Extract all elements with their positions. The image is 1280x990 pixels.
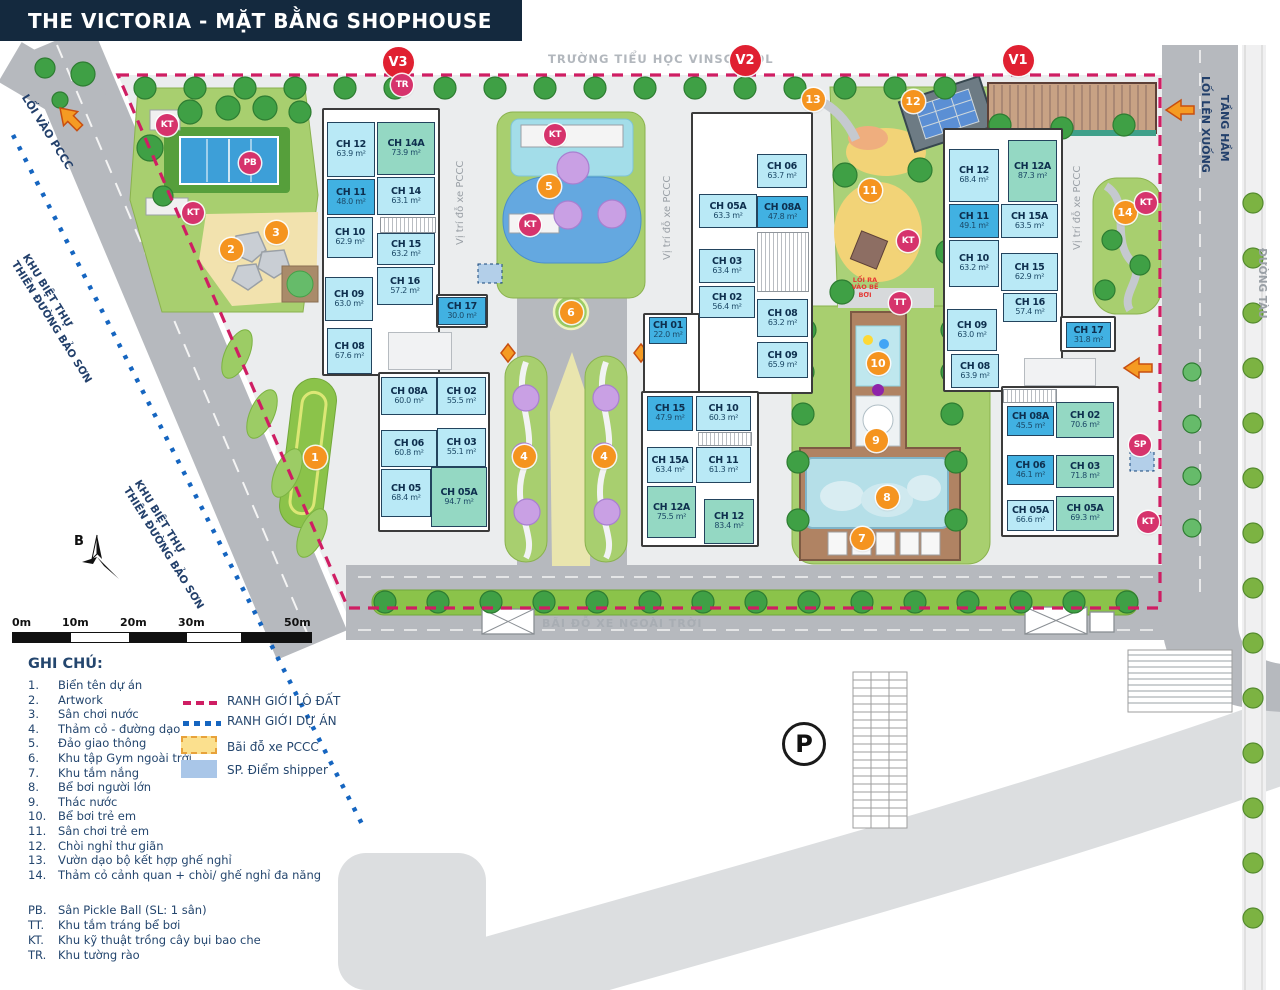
tree-icon [134,77,156,99]
tree-icon [234,77,256,99]
unit-v1-ch05a: CH 05A69.3 m² [1056,496,1114,531]
unit-v1-ch15: CH 1562.9 m² [1001,253,1058,291]
unit-v1-ch12: CH 1268.4 m² [949,149,999,202]
tree-icon [427,591,449,613]
parking-symbol: P [782,722,826,766]
legend-letter-item-1: PB.Sân Pickle Ball (SL: 1 sân) [28,903,498,918]
map-marker-3: 3 [265,221,288,244]
legend-letter-items: PB.Sân Pickle Ball (SL: 1 sân)TT.Khu tắm… [28,903,498,963]
unit-v3-ch08a: CH 08A60.0 m² [381,377,437,415]
parking-structure [853,672,907,828]
basement-ramp-label-1: LỐI LÊN XUỐNG [1199,76,1212,173]
unit-v2-ch01: CH 0122.0 m² [649,317,687,344]
tree-icon [434,77,456,99]
shipper-label: SP. Điểm shipper [227,763,328,777]
unit-v3-ch11: CH 1148.0 m² [327,179,375,215]
shipper-sample [181,760,217,778]
legend-item-8: 8.Bể bơi người lớn [28,780,498,795]
tree-icon [52,92,68,108]
tree-icon [1183,415,1201,433]
legend-item-9: 9.Thác nước [28,795,498,810]
lot-boundary-sample [183,701,221,705]
legend-item-14: 14.Thảm cỏ cảnh quan + chòi/ ghế nghỉ đa… [28,868,498,883]
page-title: THE VICTORIA - MẶT BẰNG SHOPHOUSE [0,9,492,33]
tree-icon [734,77,756,99]
map-marker-tr: TR [391,74,413,96]
map-marker-kt: KT [1137,511,1159,533]
tree-icon [1243,468,1263,488]
fire-parking-label-v2: Vị trí đỗ xe PCCC [662,176,673,260]
tree-icon [1243,578,1263,598]
map-marker-kt: KT [182,202,204,224]
stairs [757,232,809,292]
unit-v3-ch14a: CH 14A73.9 m² [377,122,435,175]
railway-label: ĐƯỜNG TÀU [1256,248,1268,318]
pccc-parking-sample [181,736,217,754]
tree-icon [745,591,767,613]
map-marker-pb: PB [239,152,261,174]
tree-icon [634,77,656,99]
unit-v3-ch12: CH 1263.9 m² [327,122,375,177]
lobby [1024,358,1096,386]
unit-v1-ch17: CH 1731.8 m² [1066,322,1111,348]
tree-icon [1113,114,1135,136]
tree-icon [1183,363,1201,381]
tree-icon [513,385,539,411]
map-marker-2: 2 [220,238,243,261]
stairs [1003,389,1057,403]
scale-10: 10m [62,616,89,629]
tree-icon [484,77,506,99]
tree-icon [374,591,396,613]
tree-icon [334,77,356,99]
tree-icon [184,77,206,99]
tree-icon [1243,688,1263,708]
tree-icon [253,96,277,120]
tree-icon [534,77,556,99]
tree-icon [480,591,502,613]
tree-icon [554,201,582,229]
header-bar: THE VICTORIA - MẶT BẰNG SHOPHOUSE [0,0,522,41]
unit-v3-ch05a: CH 05A94.7 m² [431,467,487,527]
tree-icon [945,451,967,473]
unit-v1-ch11: CH 1149.1 m² [949,204,999,238]
tree-icon [851,591,873,613]
legend-item-13: 13.Vườn dạo bộ kết hợp ghế nghỉ [28,853,498,868]
tree-icon [787,451,809,473]
unit-v1-ch16: CH 1657.4 m² [1003,293,1057,322]
stairs [380,217,436,233]
tree-icon [593,385,619,411]
site-plan-page: THE VICTORIA - MẶT BẰNG SHOPHOUSE TRƯỜNG… [0,0,1280,990]
tree-icon [904,591,926,613]
scale-50: 50m [284,616,311,629]
unit-v3-ch16: CH 1657.2 m² [377,267,433,305]
map-marker-4: 4 [593,445,616,468]
compass-icon [82,535,119,579]
unit-v2-ch05a: CH 05A63.3 m² [699,194,757,228]
map-marker-8: 8 [876,486,899,509]
unit-v3-ch10: CH 1062.9 m² [327,217,373,258]
legend-letter-item-3: KT.Khu kỹ thuật trồng cây bụi bao che [28,933,498,948]
map-marker-13: 13 [802,88,825,111]
tree-icon [834,77,856,99]
map-marker-12: 12 [902,90,925,113]
legend-letter-item-4: TR.Khu tường rào [28,948,498,963]
block-marker-v3: V3 [383,47,414,78]
unit-v1-ch12a: CH 12A87.3 m² [1008,140,1057,202]
unit-v1-ch08a: CH 08A45.5 m² [1007,406,1054,436]
unit-v1-ch09: CH 0963.0 m² [947,309,997,351]
tree-icon [1010,591,1032,613]
unit-v3-ch15: CH 1563.2 m² [377,233,435,265]
tree-icon [934,77,956,99]
tree-icon [586,591,608,613]
basement-ramp-label-2: TẦNG HẦM [1218,95,1231,162]
unit-v1-ch03: CH 0371.8 m² [1056,455,1114,488]
unit-v1-ch05a: CH 05A66.6 m² [1007,500,1054,531]
unit-v2-ch15a: CH 15A63.4 m² [647,447,693,483]
tree-icon [598,200,626,228]
tree-icon [137,135,163,161]
map-marker-9: 9 [865,429,888,452]
unit-v2-ch02: CH 0256.4 m² [699,286,755,318]
tree-icon [692,591,714,613]
fire-parking-label-v1: Vị trí đỗ xe PCCC [1072,166,1083,250]
tree-icon [514,499,540,525]
tree-icon [1116,591,1138,613]
unit-v2-ch11: CH 1161.3 m² [696,447,751,483]
tree-icon [178,100,202,124]
legend-item-1: 1.Biển tên dự án [28,678,498,693]
unit-v1-ch15a: CH 15A63.5 m² [1001,204,1058,238]
legend-item-11: 11.Sân chơi trẻ em [28,824,498,839]
map-marker-kt: KT [544,124,566,146]
tree-icon [1063,591,1085,613]
tree-icon [1243,798,1263,818]
tree-icon [941,403,963,425]
tree-icon [833,163,857,187]
unit-v2-ch09: CH 0965.9 m² [757,342,808,378]
tree-icon [1102,230,1122,250]
tree-icon [284,77,306,99]
bottom-curved-road [420,738,1280,990]
tree-icon [945,509,967,531]
unit-v1-ch08: CH 0863.9 m² [951,354,999,388]
unit-v1-ch02: CH 0270.6 m² [1056,402,1114,438]
sun-loungers [828,532,940,555]
tree-icon [1183,519,1201,537]
unit-v2-ch15: CH 1547.9 m² [647,396,693,431]
scale-30: 30m [178,616,205,629]
tree-icon [1130,255,1150,275]
tree-icon [1095,280,1115,300]
pool-entry-label: LỐI RA VÀO BỂ BƠI [845,277,885,299]
lot-boundary-label: RANH GIỚI LÔ ĐẤT [227,694,340,708]
unit-v3-ch09: CH 0963.0 m² [325,277,373,321]
tree-icon [71,62,95,86]
pccc-parking-label: Bãi đỗ xe PCCC [227,740,319,754]
map-marker-10: 10 [867,352,890,375]
tree-icon [908,158,932,182]
tree-icon [1243,908,1263,928]
scale-0: 0m [12,616,31,629]
tree-icon [1243,523,1263,543]
map-marker-7: 7 [851,527,874,550]
unit-v3-ch17: CH 1730.0 m² [438,297,486,325]
unit-v2-ch03: CH 0363.4 m² [699,249,755,283]
map-marker-sp: SP [1129,434,1151,456]
unit-v2-ch08a: CH 08A47.8 m² [757,196,808,228]
unit-v1-ch10: CH 1063.2 m² [949,240,999,287]
project-boundary-sample [183,721,221,726]
lobby [388,332,452,370]
unit-v3-ch02: CH 0255.5 m² [437,377,486,415]
map-marker-4: 4 [513,445,536,468]
compass-letter: B [74,534,84,549]
legend-item-10: 10.Bể bơi trẻ em [28,809,498,824]
map-marker-kt: KT [519,214,541,236]
tree-icon [957,591,979,613]
tree-icon [1243,633,1263,653]
tree-icon [594,499,620,525]
legend-heading: GHI CHÚ: [28,656,498,672]
tree-icon [798,591,820,613]
map-marker-11: 11 [859,179,882,202]
map-marker-14: 14 [1114,201,1137,224]
tree-icon [216,96,240,120]
map-marker-5: 5 [538,175,561,198]
tree-icon [1243,413,1263,433]
unit-v3-ch06: CH 0660.8 m² [381,430,437,467]
tree-icon [557,152,589,184]
outdoor-parking-label: BÃI ĐỖ XE NGOÀI TRỜI [542,617,702,630]
scale-20: 20m [120,616,147,629]
map-marker-1: 1 [304,446,327,469]
tree-icon [584,77,606,99]
unit-v2-ch08: CH 0863.2 m² [757,299,808,337]
scale-bar: 0m 10m 20m 30m 50m [12,616,312,648]
tree-icon [792,403,814,425]
tree-icon [1243,743,1263,763]
map-marker-tt: TT [889,292,911,314]
unit-v2-ch10: CH 1060.3 m² [696,396,751,431]
unit-v3-ch08: CH 0867.6 m² [327,328,372,374]
stairs [698,432,752,446]
unit-v3-ch05: CH 0568.4 m² [381,469,431,517]
map-marker-kt: KT [156,114,178,136]
legend-letter-item-2: TT.Khu tắm tráng bể bơi [28,918,498,933]
tree-icon [1243,853,1263,873]
tree-icon [533,591,555,613]
legend-item-12: 12.Chòi nghỉ thư giãn [28,839,498,854]
unit-v1-ch06: CH 0646.1 m² [1007,455,1054,485]
tree-icon [787,509,809,531]
block-marker-v2: V2 [730,45,761,76]
fire-parking-label-v3: Vị trí đỗ xe PCCC [455,161,466,245]
unit-v3-ch03: CH 0355.1 m² [437,428,486,467]
map-marker-6: 6 [560,301,583,324]
unit-v2-ch12a: CH 12A75.5 m² [647,486,696,538]
map-marker-kt: KT [1135,192,1157,214]
tree-icon [684,77,706,99]
tree-icon [639,591,661,613]
tree-icon [1183,467,1201,485]
unit-v2-ch06: CH 0663.7 m² [757,154,807,188]
tree-icon [289,101,311,123]
map-marker-kt: KT [897,230,919,252]
legend-items: 1.Biển tên dự án2.Artwork3.Sân chơi nước… [28,678,498,882]
project-boundary-label: RANH GIỚI DỰ ÁN [227,714,337,728]
tree-icon [1243,358,1263,378]
tree-icon [35,58,55,78]
tree-icon [1243,193,1263,213]
unit-v2-ch12: CH 1283.4 m² [704,499,754,544]
block-marker-v1: V1 [1003,45,1034,76]
unit-v3-ch14: CH 1463.1 m² [377,177,435,215]
